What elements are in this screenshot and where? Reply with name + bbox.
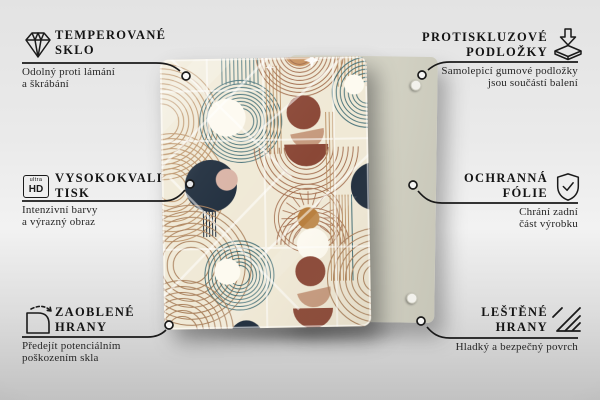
callout-subtitle: Intenzivní barvy a výrazný obraz — [22, 204, 98, 228]
ultra-hd-icon-label-big: HD — [24, 185, 48, 195]
callout-title: TEMPEROVANÉ SKLO — [55, 28, 166, 58]
board-artwork — [160, 56, 372, 330]
antislip-pad — [406, 293, 417, 304]
ultra-hd-icon: ultra HD — [23, 175, 49, 198]
callout-subtitle: Samolepicí gumové podložky jsou součástí… — [441, 65, 578, 89]
antislip-pads-icon — [552, 27, 584, 61]
hatch-lines-icon — [551, 302, 583, 336]
rounded-corner-icon — [21, 303, 53, 337]
antislip-pad — [410, 80, 421, 91]
callout-title: OCHRANNÁ FÓLIE — [464, 171, 548, 201]
callout-subtitle: Předejít potenciálním poškozením skla — [22, 340, 121, 364]
diamond-icon — [22, 30, 54, 64]
callout-title: PROTISKLUZOVÉ PODLOŽKY — [422, 30, 548, 60]
glass-board-front — [160, 56, 372, 330]
shield-check-icon — [553, 171, 585, 205]
callout-title: LEŠTĚNÉ HRANY — [481, 305, 548, 335]
callout-title: ZAOBLENÉ HRANY — [55, 305, 135, 335]
callout-subtitle: Hladký a bezpečný povrch — [456, 341, 578, 353]
product-feature-diagram: TEMPEROVANÉ SKLO Odolný proti lámání a š… — [0, 0, 600, 400]
ultra-hd-icon-label-small: ultra — [24, 178, 48, 184]
callout-subtitle: Chrání zadní část výrobku — [519, 206, 578, 230]
glass-sheen — [160, 56, 372, 330]
callout-subtitle: Odolný proti lámání a škrábání — [22, 66, 115, 90]
